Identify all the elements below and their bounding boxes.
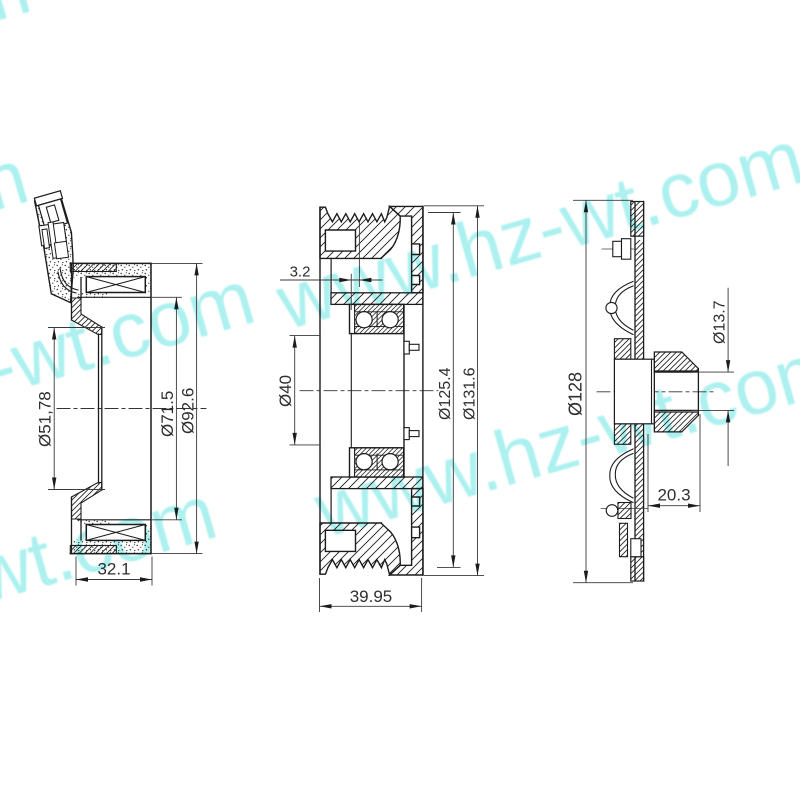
svg-text:Ø92.6: Ø92.6 bbox=[179, 388, 198, 434]
svg-text:Ø131.6: Ø131.6 bbox=[462, 367, 479, 420]
svg-text:Ø125.4: Ø125.4 bbox=[437, 367, 454, 420]
svg-text:www.hz-wt.com: www.hz-wt.com bbox=[0, 467, 225, 701]
svg-text:32.1: 32.1 bbox=[97, 560, 130, 579]
svg-text:m: m bbox=[0, 132, 37, 235]
svg-text:20.3: 20.3 bbox=[657, 486, 690, 505]
svg-text:3.2: 3.2 bbox=[290, 264, 311, 281]
svg-text:Ø40: Ø40 bbox=[276, 375, 295, 407]
svg-text:Ø51,78: Ø51,78 bbox=[36, 391, 55, 447]
svg-text:m: m bbox=[0, 0, 39, 44]
svg-text:39.95: 39.95 bbox=[350, 587, 393, 606]
svg-text:Ø128: Ø128 bbox=[566, 372, 586, 416]
svg-text:www.hz-wt.com: www.hz-wt.com bbox=[304, 320, 800, 554]
svg-text:Ø71.5: Ø71.5 bbox=[158, 391, 177, 437]
svg-text:Ø13.7: Ø13.7 bbox=[712, 300, 729, 344]
